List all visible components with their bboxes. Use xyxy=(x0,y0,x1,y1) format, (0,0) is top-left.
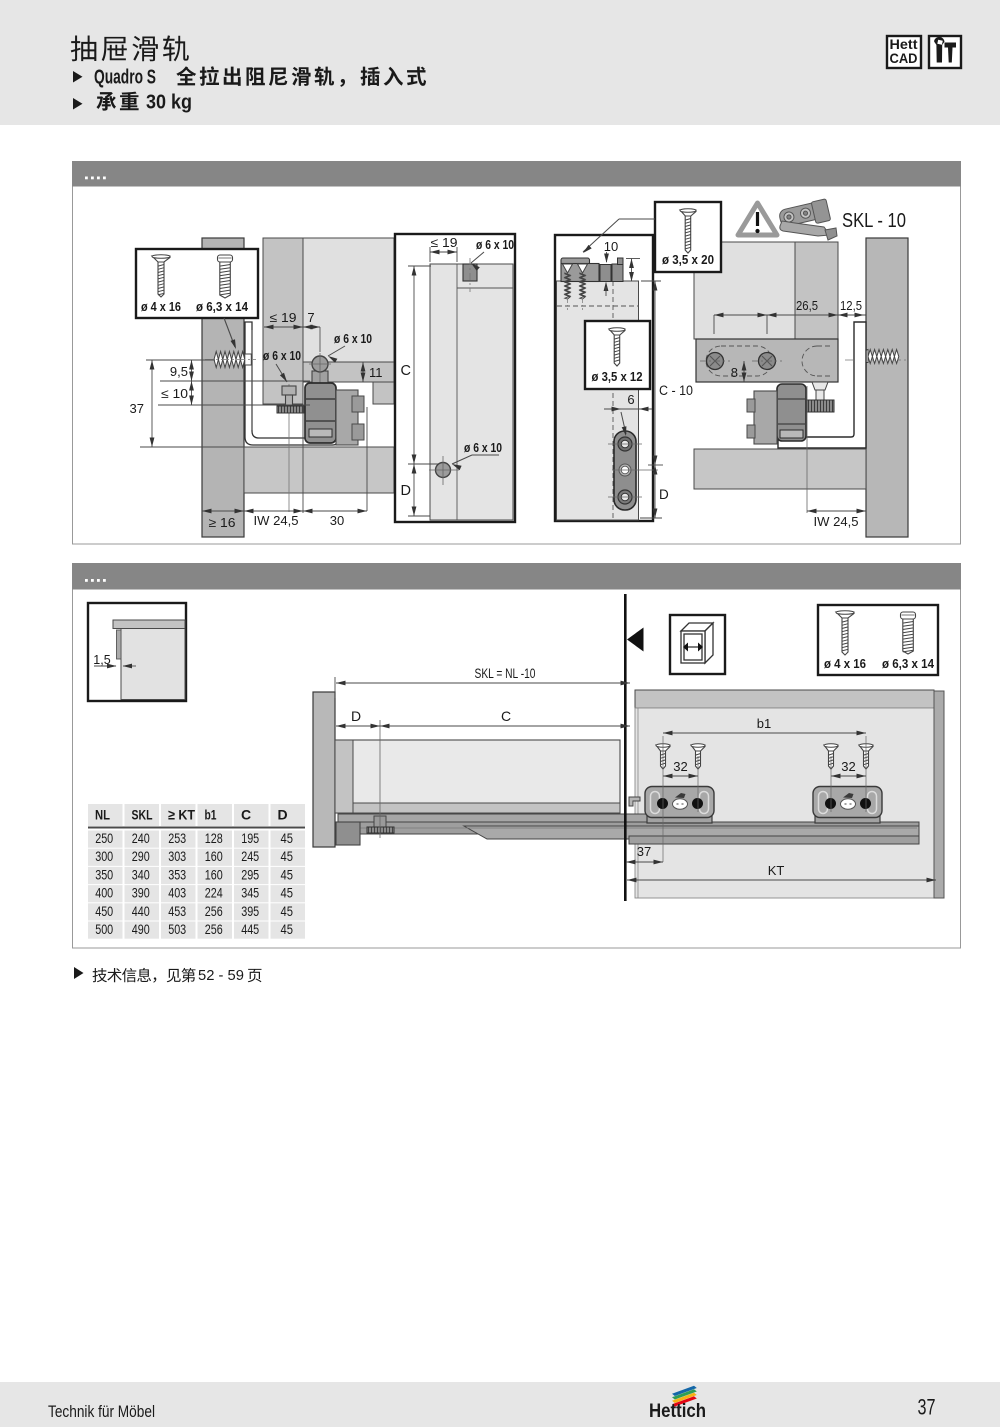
svg-text:b1: b1 xyxy=(757,716,771,731)
svg-text:440: 440 xyxy=(132,904,150,919)
svg-text:11: 11 xyxy=(369,365,383,380)
svg-text:240: 240 xyxy=(132,831,150,846)
svg-text:ø 6 x 10: ø 6 x 10 xyxy=(263,348,301,363)
svg-text:256: 256 xyxy=(205,922,223,937)
svg-text:303: 303 xyxy=(168,849,186,864)
svg-text:400: 400 xyxy=(95,886,113,901)
svg-text:D: D xyxy=(659,487,669,502)
svg-text:253: 253 xyxy=(168,831,186,846)
svg-text:ø 6 x 10: ø 6 x 10 xyxy=(464,440,502,455)
svg-text:30: 30 xyxy=(330,513,344,528)
svg-text:37: 37 xyxy=(130,401,144,416)
svg-text:345: 345 xyxy=(241,886,259,901)
svg-text:45: 45 xyxy=(281,904,294,919)
svg-text:503: 503 xyxy=(168,922,186,937)
svg-text:250: 250 xyxy=(95,831,113,846)
svg-text:ø 4 x 16: ø 4 x 16 xyxy=(824,656,866,671)
svg-text:ø 6 x 10: ø 6 x 10 xyxy=(334,331,372,346)
svg-text:12,5: 12,5 xyxy=(840,298,862,313)
svg-text:403: 403 xyxy=(168,886,186,901)
svg-text:IW 24,5: IW 24,5 xyxy=(254,513,299,528)
svg-text:≥ KT: ≥ KT xyxy=(168,807,195,823)
svg-text:KT: KT xyxy=(768,863,785,878)
svg-text:D: D xyxy=(278,807,288,823)
svg-text:295: 295 xyxy=(241,867,259,882)
svg-text:9,5: 9,5 xyxy=(170,364,188,379)
svg-text:500: 500 xyxy=(95,922,113,937)
svg-text:ø 3,5 x 12: ø 3,5 x 12 xyxy=(592,369,643,384)
svg-text:ø 4 x 16: ø 4 x 16 xyxy=(141,299,181,314)
svg-text:445: 445 xyxy=(241,922,259,937)
svg-text:SKL = NL -10: SKL = NL -10 xyxy=(475,666,536,681)
svg-text:b1: b1 xyxy=(205,807,217,823)
svg-text:10: 10 xyxy=(604,239,618,254)
svg-text:ø 6 x 10: ø 6 x 10 xyxy=(476,237,514,252)
svg-text:290: 290 xyxy=(132,849,150,864)
svg-text:37: 37 xyxy=(918,1395,936,1420)
svg-text:353: 353 xyxy=(168,867,186,882)
svg-text:ø 3,5 x 20: ø 3,5 x 20 xyxy=(662,252,714,267)
svg-text:SKL: SKL xyxy=(132,807,153,823)
svg-text:ø 6,3 x 14: ø 6,3 x 14 xyxy=(882,656,935,671)
svg-text:C: C xyxy=(241,807,251,823)
svg-text:128: 128 xyxy=(205,831,223,846)
svg-text:340: 340 xyxy=(132,867,150,882)
svg-text:390: 390 xyxy=(132,886,150,901)
svg-text:≥ 16: ≥ 16 xyxy=(209,515,236,530)
svg-text:26,5: 26,5 xyxy=(796,298,818,313)
svg-text:Hettich: Hettich xyxy=(649,1401,706,1422)
svg-text:160: 160 xyxy=(205,849,223,864)
svg-text:350: 350 xyxy=(95,867,113,882)
svg-text:52 - 59: 52 - 59 xyxy=(198,968,244,984)
svg-text:SKL - 10: SKL - 10 xyxy=(842,210,906,232)
svg-text:D: D xyxy=(401,483,411,499)
svg-text:32: 32 xyxy=(673,759,687,774)
svg-text:45: 45 xyxy=(281,886,294,901)
svg-text:NL: NL xyxy=(95,807,110,823)
svg-text:490: 490 xyxy=(132,922,150,937)
svg-text:≤ 19: ≤ 19 xyxy=(431,235,458,250)
svg-text:45: 45 xyxy=(281,849,294,864)
svg-text:195: 195 xyxy=(241,831,259,846)
svg-text:395: 395 xyxy=(241,904,259,919)
svg-text:C: C xyxy=(401,363,411,379)
svg-text:37: 37 xyxy=(637,844,651,859)
svg-text:245: 245 xyxy=(241,849,259,864)
svg-text:32: 32 xyxy=(841,759,855,774)
svg-text:300: 300 xyxy=(95,849,113,864)
svg-text:45: 45 xyxy=(281,922,294,937)
svg-text:224: 224 xyxy=(205,886,223,901)
svg-text:453: 453 xyxy=(168,904,186,919)
svg-text:C - 10: C - 10 xyxy=(659,383,693,398)
svg-text:160: 160 xyxy=(205,867,223,882)
svg-text:≤ 19: ≤ 19 xyxy=(270,310,297,325)
svg-text:45: 45 xyxy=(281,831,294,846)
svg-text:Technik für Möbel: Technik für Möbel xyxy=(48,1402,155,1421)
svg-text:450: 450 xyxy=(95,904,113,919)
svg-text:≤ 10: ≤ 10 xyxy=(161,386,188,401)
svg-text:8: 8 xyxy=(731,365,738,380)
svg-text:ø 6,3 x 14: ø 6,3 x 14 xyxy=(196,299,249,314)
svg-text:45: 45 xyxy=(281,867,294,882)
svg-text:C: C xyxy=(501,708,511,724)
svg-text:D: D xyxy=(351,708,361,724)
svg-text:7: 7 xyxy=(307,310,314,325)
svg-text:256: 256 xyxy=(205,904,223,919)
svg-text:6: 6 xyxy=(627,392,634,407)
svg-text:IW 24,5: IW 24,5 xyxy=(814,514,859,529)
